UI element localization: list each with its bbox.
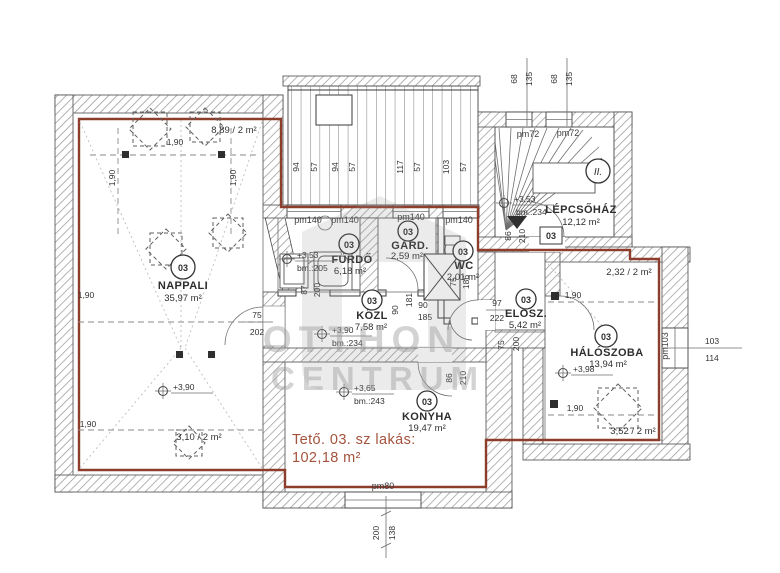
room-name: NAPPALI <box>158 280 208 292</box>
dim: 68 <box>549 74 559 84</box>
dim: 200 <box>312 283 322 297</box>
dim: 200 <box>511 337 521 351</box>
door-arc-gard <box>386 258 418 290</box>
dims-bottom: 200 138 <box>371 526 397 540</box>
room-label-nappali: 03 NAPPALI 35,97 m² <box>158 255 208 304</box>
level-bm: bm.:234 <box>516 207 547 217</box>
dims-nappali-pass: 75 202 <box>250 310 264 337</box>
dim: 200 <box>371 526 381 540</box>
dim: 1,90 <box>228 169 238 186</box>
dim: 222 <box>490 313 504 323</box>
dim: 90 <box>418 300 428 310</box>
room-name: KONYHA <box>402 411 452 423</box>
room-label-elosz: 03 ELOSZ. 5,42 m² <box>505 289 547 331</box>
room-area: 12,12 m² <box>562 217 600 228</box>
dim: 1,90 <box>167 137 184 147</box>
room-label-lepcsohaz: LÉPCSŐHÁZ 12,12 m² <box>545 203 616 228</box>
dim: 117 <box>395 160 405 174</box>
dim: 57 <box>458 162 468 172</box>
entrance-tag: 03 <box>546 231 556 241</box>
skylight-icon <box>129 108 171 150</box>
dim: 135 <box>524 72 534 86</box>
room-name: KÖZL <box>356 309 388 322</box>
dim: 57 <box>347 162 357 172</box>
room-number: 03 <box>344 240 354 250</box>
note-haloszoba-top: 2,32 / 2 m² <box>606 267 651 278</box>
level-mark-nappali: +3,90 <box>155 382 213 399</box>
level-value: +3,90 <box>173 382 195 392</box>
dim: 138 <box>387 526 397 540</box>
dim: 75 <box>448 277 458 287</box>
dim: 94 <box>330 162 340 172</box>
room-area: 6,18 m² <box>334 266 366 277</box>
dim: 1,90 <box>78 290 95 300</box>
dim: 94 <box>291 162 301 172</box>
dim: 185 <box>418 312 432 322</box>
window-pm72-a <box>506 112 532 127</box>
dim: 103 <box>441 160 451 174</box>
room-area: 13,94 m² <box>589 359 627 370</box>
room-area: 7,58 m² <box>355 322 387 333</box>
level-bm: bm.:243 <box>354 396 385 406</box>
dim: 75 <box>252 310 262 320</box>
dim: 181 <box>404 293 414 307</box>
skylight-icon <box>209 214 247 252</box>
room-name: HÁLÓSZOBA <box>570 346 643 359</box>
room-label-gard: 03 GARD. 2,59 m² <box>391 221 429 262</box>
level-value: +3,53 <box>297 250 319 260</box>
dim: 57 <box>412 162 422 172</box>
tag-pm103: pm103 <box>660 332 670 360</box>
dim: 75 <box>496 340 506 350</box>
room-number: 03 <box>422 397 432 407</box>
dim: 135 <box>564 72 574 86</box>
dim: 57 <box>309 162 319 172</box>
door-arc-wc <box>450 318 472 340</box>
dims-stair-top: 68 135 68 135 <box>509 72 574 86</box>
dim: 1,90 <box>567 403 584 413</box>
level-value: +3,90 <box>332 325 354 335</box>
window-pm80 <box>345 492 421 508</box>
window-pm72-b <box>546 112 572 127</box>
room-number: 03 <box>178 263 188 273</box>
dims-side-window: 103 114 <box>705 336 719 363</box>
room-number: 03 <box>601 332 611 342</box>
stair-landing <box>533 163 595 193</box>
room-number: 03 <box>367 296 377 306</box>
room-number: 03 <box>458 247 468 257</box>
note-nappali-top: 8,89 / 2 m² <box>211 125 256 136</box>
level-bm: bm.:205 <box>297 263 328 273</box>
dim: 86 <box>444 373 454 383</box>
door-arc-haloszoba <box>560 296 594 330</box>
dim: 97 <box>492 298 502 308</box>
tag-pm140: pm140 <box>445 215 473 225</box>
tag-pm140: pm140 <box>397 212 425 222</box>
room-number: 03 <box>521 295 531 305</box>
note-haloszoba-bottom: 3,52 / 2 m² <box>610 426 655 437</box>
note-nappali-bottom: 3,10 / 2 m² <box>176 432 221 443</box>
level-bm: bm.:234 <box>332 338 363 348</box>
room-area: 35,97 m² <box>164 293 202 304</box>
room-label-konyha: 03 KONYHA 19,47 m² <box>402 391 452 434</box>
title-line1: Tető. 03. sz lakás: <box>292 432 416 448</box>
dim: 68 <box>509 74 519 84</box>
floorplan-page: II. 03 <box>0 0 780 573</box>
tag-pm72: pm72 <box>557 128 580 138</box>
dim: 1,90 <box>107 169 117 186</box>
door-arc-elosz <box>448 300 478 330</box>
dims-kitchen-door: 86 210 <box>444 371 468 385</box>
floorplan-canvas: II. 03 <box>0 0 780 573</box>
tag-pm140: pm140 <box>331 215 359 225</box>
level-value: +3,65 <box>354 383 376 393</box>
dim: 87 <box>299 285 309 295</box>
level-value: +3,98 <box>573 364 595 374</box>
dim: 202 <box>250 327 264 337</box>
level-mark-konyha: +3,65 bm.:243 <box>336 383 394 406</box>
level-marks: +3,53 bm.:205 +3,90 bm.:234 +3,65 bm.:24… <box>155 194 613 406</box>
room-name: WC <box>454 260 473 272</box>
tag-pm140: pm140 <box>294 215 322 225</box>
dim: 103 <box>705 336 719 346</box>
dim: 1,90 <box>80 419 97 429</box>
room-name: FÜRDŐ <box>331 253 372 266</box>
dim: 186 <box>461 275 471 289</box>
dim: 90 <box>390 305 400 315</box>
title-line2: 102,18 m² <box>292 450 361 466</box>
room-name: LÉPCSŐHÁZ <box>545 203 616 216</box>
dim: 86 <box>503 231 513 241</box>
tag-pm72: pm72 <box>517 129 540 139</box>
title-block: Tető. 03. sz lakás: 102,18 m² <box>292 432 416 466</box>
storey-indicator-label: II. <box>594 167 602 178</box>
dim: 1,90 <box>565 290 582 300</box>
skylight-icon <box>594 384 642 432</box>
tag-pm80: pm80 <box>372 481 395 491</box>
room-area: 2,59 m² <box>391 251 423 262</box>
room-name: ELOSZ. <box>505 308 547 320</box>
level-value: +3,53 <box>514 194 536 204</box>
room-number: 03 <box>403 227 413 237</box>
dim: 210 <box>517 229 527 243</box>
dim: 210 <box>458 371 468 385</box>
room-area: 5,42 m² <box>509 320 541 331</box>
dim: 114 <box>705 353 719 363</box>
chimney-box <box>316 95 352 125</box>
